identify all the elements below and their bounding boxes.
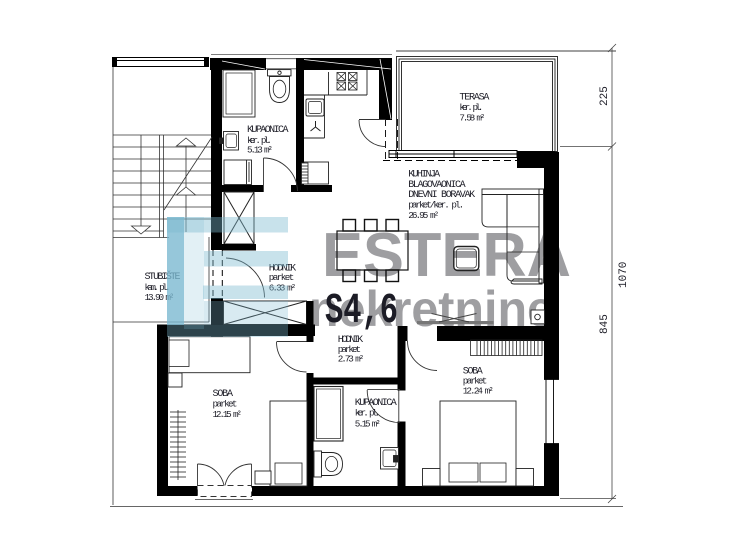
svg-text:26.95 m²: 26.95 m² bbox=[408, 210, 439, 221]
svg-text:5.15 m²: 5.15 m² bbox=[355, 418, 381, 429]
svg-text:parket: parket bbox=[213, 399, 238, 410]
svg-text:S4,6: S4,6 bbox=[325, 286, 398, 335]
svg-text:ker. pl.: ker. pl. bbox=[459, 102, 483, 113]
svg-text:7.58 m²: 7.58 m² bbox=[459, 113, 485, 124]
svg-text:225: 225 bbox=[599, 86, 611, 106]
svg-text:12.15 m²: 12.15 m² bbox=[213, 409, 243, 420]
svg-text:845: 845 bbox=[599, 314, 611, 334]
svg-text:1070: 1070 bbox=[618, 262, 630, 288]
svg-text:12.24 m²: 12.24 m² bbox=[463, 386, 494, 397]
svg-text:parket/ker. pl.: parket/ker. pl. bbox=[408, 199, 464, 210]
svg-text:2.73 m²: 2.73 m² bbox=[338, 354, 364, 365]
svg-text:5.13 m²: 5.13 m² bbox=[247, 145, 273, 156]
svg-text:ker. pl.: ker. pl. bbox=[355, 407, 380, 418]
